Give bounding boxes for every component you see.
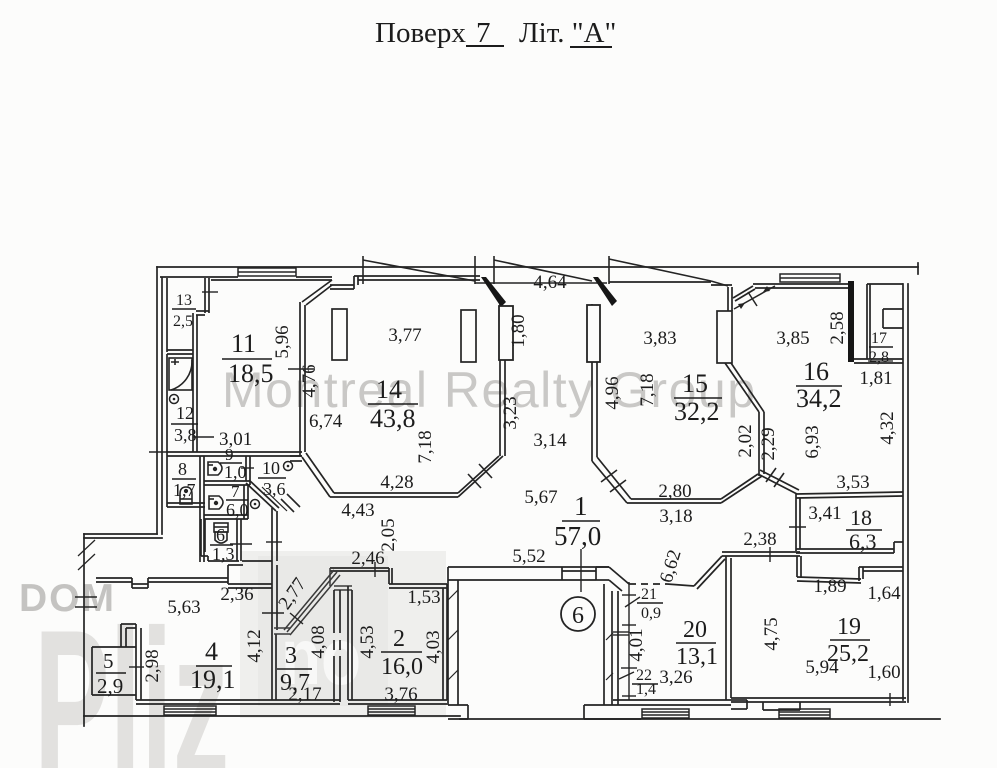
- svg-text:1,0: 1,0: [224, 462, 247, 482]
- svg-text:5,96: 5,96: [272, 325, 293, 358]
- svg-text:34,2: 34,2: [796, 384, 842, 413]
- svg-text:Поверх: Поверх: [375, 17, 466, 49]
- svg-text:4,64: 4,64: [533, 272, 567, 293]
- svg-text:3,41: 3,41: [808, 503, 841, 524]
- svg-text:3,8: 3,8: [174, 425, 197, 445]
- svg-text:4,01: 4,01: [626, 628, 647, 661]
- svg-text:2,80: 2,80: [658, 481, 691, 502]
- svg-text:1,3: 1,3: [212, 544, 235, 564]
- svg-text:19,1: 19,1: [190, 665, 236, 694]
- svg-text:32,2: 32,2: [674, 397, 720, 426]
- svg-text:1,4: 1,4: [636, 681, 656, 698]
- svg-text:6,3: 6,3: [849, 529, 877, 554]
- svg-text:6,93: 6,93: [802, 425, 823, 458]
- svg-text:4: 4: [205, 637, 218, 666]
- svg-text:2,38: 2,38: [743, 529, 776, 550]
- svg-text:57,0: 57,0: [554, 521, 601, 551]
- svg-text:1: 1: [574, 491, 588, 521]
- svg-text:7,18: 7,18: [415, 430, 436, 463]
- svg-text:14: 14: [376, 375, 402, 404]
- svg-text:3,14: 3,14: [533, 430, 567, 451]
- svg-text:4,08: 4,08: [308, 625, 329, 658]
- svg-text:2,8: 2,8: [869, 349, 889, 366]
- svg-text:20: 20: [683, 617, 707, 643]
- svg-text:3,6: 3,6: [263, 479, 286, 499]
- svg-text:1,7: 1,7: [173, 480, 196, 500]
- svg-text:5,63: 5,63: [167, 597, 200, 618]
- svg-text:2,17: 2,17: [288, 684, 321, 705]
- svg-text:4,32: 4,32: [877, 411, 898, 444]
- svg-text:2,9: 2,9: [97, 674, 123, 698]
- svg-text:6: 6: [572, 603, 584, 629]
- svg-text:15: 15: [682, 369, 708, 398]
- svg-text:2,5: 2,5: [173, 313, 193, 330]
- svg-text:7,18: 7,18: [637, 373, 658, 406]
- svg-text:2,98: 2,98: [142, 649, 163, 682]
- svg-text:10: 10: [262, 458, 280, 478]
- svg-text:Літ. "А": Літ. "А": [519, 17, 616, 49]
- svg-text:6: 6: [216, 525, 225, 545]
- svg-text:4,96: 4,96: [602, 376, 623, 409]
- svg-text:2,58: 2,58: [827, 311, 848, 344]
- svg-text:4,12: 4,12: [244, 629, 265, 662]
- svg-text:5,52: 5,52: [512, 546, 545, 567]
- svg-text:2,02: 2,02: [735, 424, 756, 457]
- svg-text:3,83: 3,83: [643, 328, 676, 349]
- svg-text:11: 11: [231, 329, 256, 358]
- svg-text:1,60: 1,60: [867, 662, 900, 683]
- svg-text:1,81: 1,81: [859, 368, 892, 389]
- svg-text:21: 21: [641, 586, 657, 603]
- svg-text:4,75: 4,75: [761, 617, 782, 650]
- svg-text:4,28: 4,28: [380, 472, 413, 493]
- svg-text:3: 3: [285, 643, 297, 669]
- svg-text:2,05: 2,05: [378, 518, 399, 551]
- svg-text:3,76: 3,76: [384, 684, 417, 705]
- svg-text:18: 18: [850, 505, 872, 530]
- svg-text:3,53: 3,53: [836, 472, 869, 493]
- svg-text:5: 5: [103, 649, 114, 673]
- svg-text:4,53: 4,53: [357, 625, 378, 658]
- svg-text:6,0: 6,0: [226, 500, 249, 520]
- svg-text:4,03: 4,03: [423, 630, 444, 663]
- svg-text:1,80: 1,80: [508, 314, 529, 347]
- svg-text:5,94: 5,94: [805, 657, 839, 678]
- svg-text:8: 8: [178, 459, 187, 479]
- svg-text:17: 17: [871, 330, 887, 347]
- svg-text:1,89: 1,89: [813, 576, 846, 597]
- svg-text:7: 7: [231, 482, 240, 501]
- svg-text:2,46: 2,46: [351, 548, 384, 569]
- svg-text:13: 13: [176, 292, 192, 309]
- svg-text:3,18: 3,18: [659, 506, 692, 527]
- svg-text:19: 19: [837, 614, 861, 640]
- svg-text:3,26: 3,26: [659, 667, 692, 688]
- svg-text:16,0: 16,0: [381, 654, 423, 680]
- svg-text:3,23: 3,23: [500, 396, 521, 429]
- svg-text:4,43: 4,43: [341, 500, 374, 521]
- svg-text:1,53: 1,53: [407, 587, 440, 608]
- svg-text:12: 12: [176, 403, 194, 423]
- svg-text:6,74: 6,74: [309, 411, 343, 432]
- svg-text:43,8: 43,8: [370, 404, 416, 433]
- svg-text:0,9: 0,9: [641, 605, 661, 622]
- svg-text:2: 2: [393, 626, 405, 652]
- svg-text:2,29: 2,29: [758, 427, 779, 460]
- svg-text:5,67: 5,67: [524, 487, 557, 508]
- svg-text:7: 7: [476, 17, 491, 49]
- svg-text:2,36: 2,36: [220, 584, 253, 605]
- svg-text:3,01: 3,01: [219, 429, 252, 450]
- svg-text:3,85: 3,85: [776, 328, 809, 349]
- svg-text:16: 16: [803, 357, 829, 386]
- svg-text:18,5: 18,5: [228, 359, 274, 388]
- svg-text:1,64: 1,64: [867, 583, 901, 604]
- svg-text:3,77: 3,77: [388, 325, 421, 346]
